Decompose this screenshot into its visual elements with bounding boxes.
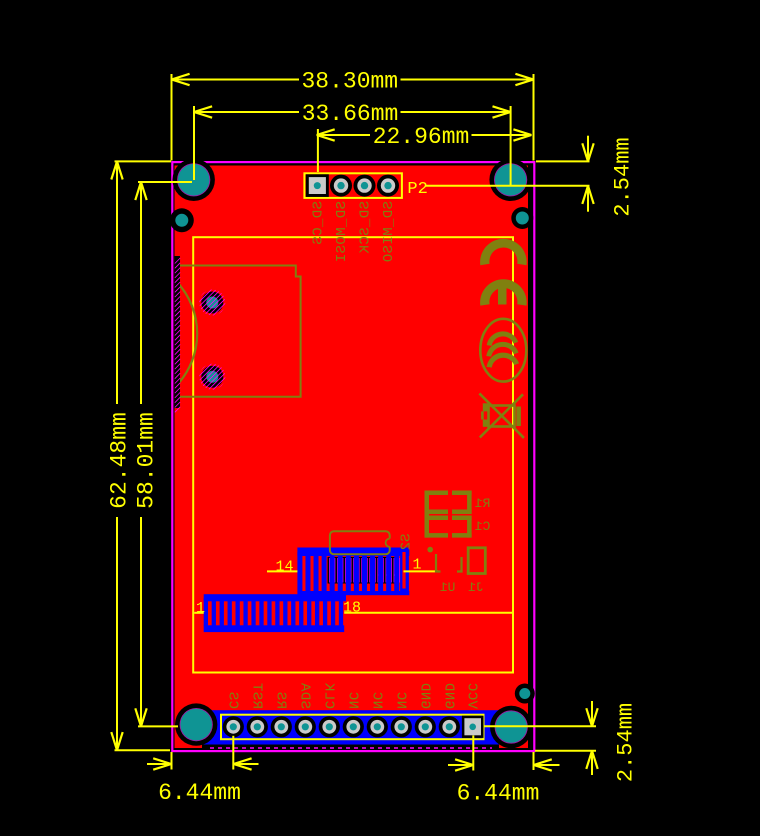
svg-text:SDA: SDA <box>296 682 312 709</box>
svg-text:CLK: CLK <box>320 682 336 709</box>
svg-text:2.54mm: 2.54mm <box>611 137 636 216</box>
svg-text:GND: GND <box>440 683 456 709</box>
svg-text:RS: RS <box>272 691 288 709</box>
svg-text:6.44mm: 6.44mm <box>158 780 241 806</box>
svg-text:NC: NC <box>344 691 360 709</box>
svg-text:14: 14 <box>275 559 293 576</box>
svg-text:VCC: VCC <box>464 683 480 709</box>
svg-text:RST: RST <box>248 683 264 709</box>
svg-text:SD_CS: SD_CS <box>310 201 326 245</box>
svg-text:1: 1 <box>196 600 205 617</box>
svg-text:1: 1 <box>412 557 421 574</box>
svg-text:CS: CS <box>224 691 240 709</box>
svg-text:S2: S2 <box>399 534 415 551</box>
svg-text:NC: NC <box>392 691 408 709</box>
svg-text:22.96mm: 22.96mm <box>373 124 470 150</box>
svg-text:SD_MISO: SD_MISO <box>381 201 397 263</box>
svg-text:C1: C1 <box>475 519 491 534</box>
svg-text:SD_SCK: SD_SCK <box>358 201 374 254</box>
svg-text:58.01mm: 58.01mm <box>134 412 160 509</box>
svg-text:J1: J1 <box>468 580 484 595</box>
svg-text:R1: R1 <box>475 496 491 511</box>
svg-text:6.44mm: 6.44mm <box>457 781 540 807</box>
svg-text:18: 18 <box>343 600 361 617</box>
svg-text:SD_MOSI: SD_MOSI <box>334 201 350 263</box>
svg-text:62.48mm: 62.48mm <box>107 412 133 509</box>
svg-text:GND: GND <box>416 683 432 709</box>
svg-text:38.30mm: 38.30mm <box>301 69 398 95</box>
svg-text:P2: P2 <box>407 180 427 199</box>
svg-text:U1: U1 <box>440 580 456 595</box>
svg-text:NC: NC <box>368 691 384 709</box>
svg-text:2.54mm: 2.54mm <box>614 703 639 782</box>
